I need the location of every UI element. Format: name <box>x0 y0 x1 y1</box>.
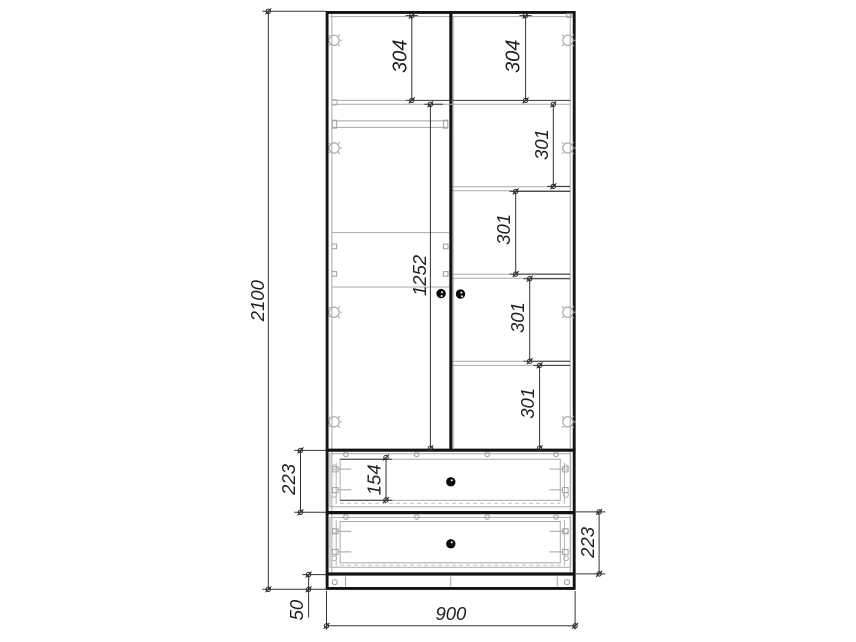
svg-text:301: 301 <box>531 129 552 160</box>
svg-text:304: 304 <box>503 40 525 73</box>
svg-text:304: 304 <box>389 40 411 73</box>
svg-text:301: 301 <box>493 214 514 245</box>
svg-text:154: 154 <box>364 464 385 495</box>
svg-text:1252: 1252 <box>409 254 430 296</box>
svg-text:2100: 2100 <box>247 279 268 322</box>
svg-text:900: 900 <box>435 603 467 624</box>
svg-text:301: 301 <box>517 388 538 419</box>
svg-text:301: 301 <box>507 302 528 333</box>
svg-text:50: 50 <box>286 599 307 620</box>
svg-text:223: 223 <box>278 463 299 496</box>
svg-text:223: 223 <box>577 526 598 559</box>
